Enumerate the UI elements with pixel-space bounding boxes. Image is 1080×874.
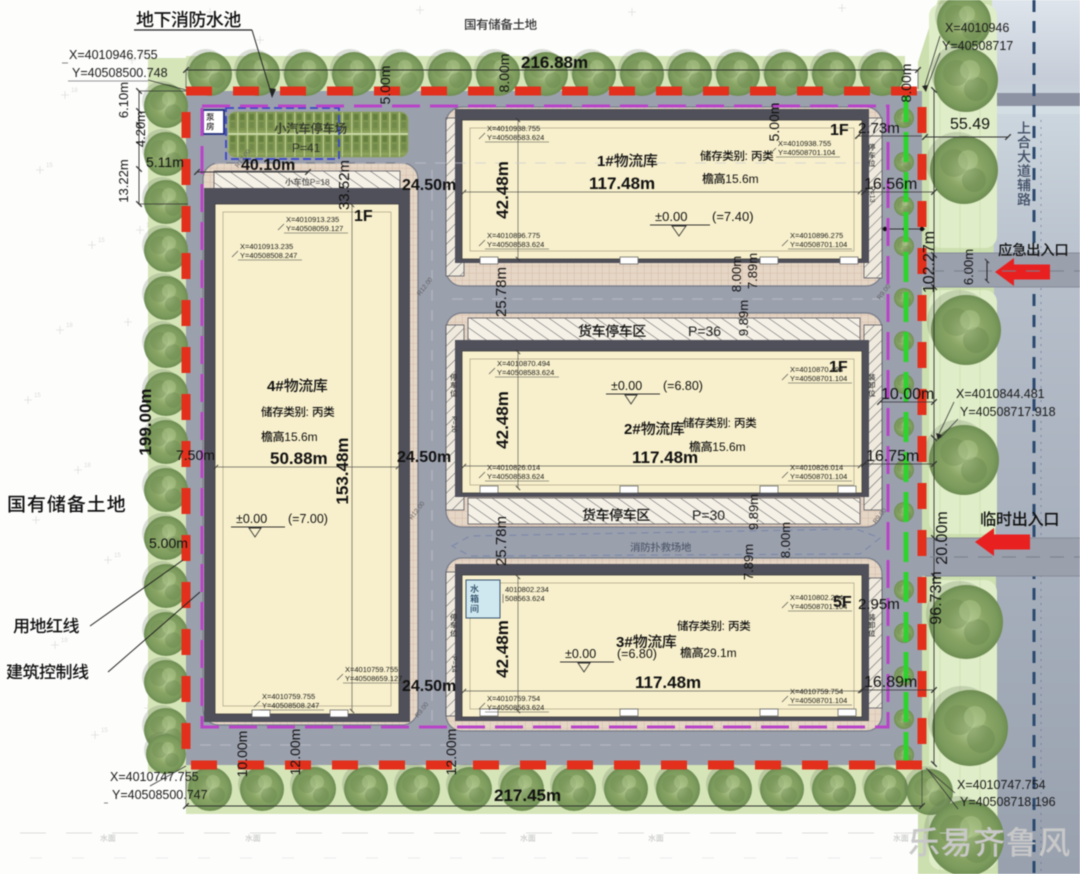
svg-text:16.89m: 16.89m — [864, 674, 917, 691]
svg-text:15: 15 — [101, 728, 108, 734]
svg-text:±0.00: ±0.00 — [611, 379, 642, 393]
svg-text:X=4010938.755: X=4010938.755 — [487, 124, 540, 133]
svg-text:X=4010870.494: X=4010870.494 — [497, 359, 550, 368]
svg-text:24.50m: 24.50m — [397, 449, 451, 466]
svg-text:X=4010826.014: X=4010826.014 — [790, 463, 843, 472]
svg-text:P=30: P=30 — [692, 507, 725, 523]
svg-text:Y=40508059.127: Y=40508059.127 — [286, 224, 343, 233]
svg-text:96.73m: 96.73m — [928, 571, 945, 624]
svg-text:X=4010844.481: X=4010844.481 — [956, 387, 1045, 401]
svg-text:5.00m: 5.00m — [377, 66, 393, 105]
svg-text::: : — [745, 151, 748, 163]
svg-text:42.48m: 42.48m — [493, 391, 512, 449]
svg-text:(=7.40): (=7.40) — [712, 209, 754, 224]
svg-text:42.48m: 42.48m — [493, 620, 512, 678]
svg-text:Y=40508583.624: Y=40508583.624 — [487, 240, 544, 249]
svg-text:±0.00: ±0.00 — [236, 512, 267, 526]
svg-text:7.89m: 7.89m — [741, 544, 756, 580]
svg-text:1F: 1F — [830, 122, 849, 139]
svg-text:18: 18 — [66, 323, 73, 329]
svg-text:508563.624: 508563.624 — [505, 594, 545, 603]
svg-text::: : — [306, 407, 309, 419]
svg-text:X=4010870.494: X=4010870.494 — [790, 365, 843, 374]
svg-text:±0.00: ±0.00 — [565, 647, 596, 661]
svg-text:Y=40508508.247: Y=40508508.247 — [240, 251, 297, 260]
svg-text:10.00m: 10.00m — [234, 731, 250, 778]
svg-text:7.89m: 7.89m — [745, 253, 760, 289]
svg-text:X=4010759.755: X=4010759.755 — [262, 692, 315, 701]
svg-text:117.48m: 117.48m — [635, 673, 701, 692]
svg-text:15.6m: 15.6m — [712, 440, 745, 454]
svg-text:2#: 2# — [624, 421, 641, 438]
svg-text:X=4010938.755: X=4010938.755 — [778, 139, 831, 148]
svg-text:6.00m: 6.00m — [961, 249, 976, 285]
svg-text:P=18: P=18 — [310, 177, 330, 187]
svg-text:8.00m: 8.00m — [778, 522, 793, 558]
svg-text:199.00m: 199.00m — [136, 388, 155, 455]
svg-text:24.50m: 24.50m — [402, 678, 456, 695]
svg-text:15: 15 — [34, 393, 41, 399]
svg-text:X=4010946.755: X=4010946.755 — [69, 48, 158, 62]
svg-text:4#: 4# — [267, 378, 284, 395]
svg-text:24.50m: 24.50m — [402, 177, 456, 194]
svg-text:Y=40508701.104: Y=40508701.104 — [790, 240, 847, 249]
svg-text:X=4010826.014: X=4010826.014 — [487, 463, 540, 472]
svg-text:Y=40508583.624: Y=40508583.624 — [487, 472, 544, 481]
svg-text:217.45m: 217.45m — [494, 786, 561, 805]
svg-text:5.00m: 5.00m — [149, 535, 188, 551]
svg-text::: : — [728, 418, 731, 430]
svg-text:Y=40508583.624: Y=40508583.624 — [497, 368, 554, 377]
svg-text:Y=40508701.104: Y=40508701.104 — [790, 696, 847, 705]
svg-text:117.48m: 117.48m — [632, 448, 698, 467]
svg-text:P=41: P=41 — [292, 141, 321, 155]
svg-text:153.48m: 153.48m — [333, 437, 352, 504]
svg-text:Y=40508563.624: Y=40508563.624 — [487, 703, 544, 712]
svg-text:Y=40508701.104: Y=40508701.104 — [790, 602, 847, 611]
svg-text:25.78m: 25.78m — [493, 516, 510, 566]
svg-text:X=4010759.755: X=4010759.755 — [345, 665, 398, 674]
svg-text:7.50m: 7.50m — [176, 447, 215, 463]
svg-text:(=6.80): (=6.80) — [663, 379, 703, 393]
svg-text:X=4010896.775: X=4010896.775 — [487, 231, 540, 240]
svg-text:25.78m: 25.78m — [493, 267, 510, 317]
svg-text:Y=40508717.918: Y=40508717.918 — [960, 405, 1056, 419]
svg-text:X=4010759.754: X=4010759.754 — [487, 694, 540, 703]
svg-text:15: 15 — [98, 238, 105, 244]
svg-text:4.20m: 4.20m — [133, 111, 148, 147]
svg-text:216.88m: 216.88m — [521, 53, 588, 72]
svg-text:18: 18 — [84, 463, 91, 469]
svg-text:Y=40508701.104: Y=40508701.104 — [778, 148, 835, 157]
svg-text:4010802.234: 4010802.234 — [505, 585, 549, 594]
svg-text:9.89m: 9.89m — [746, 494, 761, 530]
svg-text:X=4010747.754: X=4010747.754 — [957, 778, 1046, 792]
svg-text:117.48m: 117.48m — [589, 174, 655, 193]
svg-text:Y=40508500.747: Y=40508500.747 — [112, 788, 208, 802]
svg-text:8.00m: 8.00m — [898, 64, 914, 103]
svg-text:X=4010802.234: X=4010802.234 — [790, 593, 843, 602]
svg-text:12.00m: 12.00m — [287, 729, 303, 776]
svg-text:P=36: P=36 — [688, 323, 721, 339]
svg-text:Y=40508701.104: Y=40508701.104 — [790, 374, 847, 383]
svg-text:15: 15 — [46, 163, 53, 169]
svg-text:12.00m: 12.00m — [443, 729, 459, 776]
svg-text:1F: 1F — [354, 208, 373, 225]
svg-text:Y=40508717: Y=40508717 — [942, 39, 1013, 53]
svg-text:P=16: P=16 — [450, 416, 457, 433]
svg-text:Y=40508583.624: Y=40508583.624 — [487, 133, 544, 142]
svg-text:102.27m: 102.27m — [921, 231, 938, 293]
svg-text:X=4010913.235: X=4010913.235 — [286, 215, 339, 224]
svg-text:16.75m: 16.75m — [866, 448, 919, 465]
svg-text:8.00m: 8.00m — [496, 54, 512, 93]
svg-text:6.10m: 6.10m — [116, 82, 131, 118]
svg-text:42.48m: 42.48m — [493, 161, 512, 219]
svg-text:50.88m: 50.88m — [270, 449, 328, 468]
svg-text:40.10m: 40.10m — [241, 157, 295, 174]
svg-text:2.73m: 2.73m — [858, 120, 900, 137]
svg-text:9.89m: 9.89m — [736, 300, 751, 336]
svg-text:X=4010896.275: X=4010896.275 — [790, 231, 843, 240]
svg-text:(=7.00): (=7.00) — [288, 512, 328, 526]
svg-text:18: 18 — [61, 638, 68, 644]
svg-text:X=4010946: X=4010946 — [945, 21, 1009, 35]
svg-text:Y=40508701.104: Y=40508701.104 — [790, 472, 847, 481]
svg-text:15.6m: 15.6m — [284, 430, 317, 444]
svg-text:X=4010759.754: X=4010759.754 — [790, 687, 843, 696]
svg-text:29.1m: 29.1m — [703, 646, 736, 660]
svg-text:2.95m: 2.95m — [858, 596, 900, 613]
svg-text:18: 18 — [71, 88, 78, 94]
svg-text:Y=40508508.247: Y=40508508.247 — [262, 701, 319, 710]
svg-text:5.00m: 5.00m — [766, 103, 782, 142]
svg-text:Y=40508659.127: Y=40508659.127 — [345, 674, 402, 683]
svg-text:13.22m: 13.22m — [116, 159, 131, 202]
svg-text::: : — [722, 621, 725, 633]
svg-text:55.49: 55.49 — [950, 116, 990, 133]
svg-text:1#: 1# — [597, 153, 614, 170]
svg-text:Y=40508718.196: Y=40508718.196 — [960, 795, 1056, 809]
svg-text:8.00m: 8.00m — [729, 256, 744, 292]
svg-text:Y=40508500.748: Y=40508500.748 — [72, 66, 168, 80]
svg-text:10.00m: 10.00m — [881, 386, 934, 403]
svg-text:X=4010913.235: X=4010913.235 — [240, 242, 293, 251]
svg-text:16.56m: 16.56m — [864, 176, 917, 193]
svg-text:15: 15 — [114, 553, 121, 559]
svg-text:X=4010747.755: X=4010747.755 — [110, 770, 199, 784]
svg-text:P=14: P=14 — [450, 656, 457, 673]
svg-text:(=6.80): (=6.80) — [617, 647, 657, 661]
svg-text:15.6m: 15.6m — [725, 172, 758, 186]
svg-text:5.11m: 5.11m — [146, 154, 184, 170]
svg-text:33.52m: 33.52m — [336, 160, 353, 210]
svg-text:±0.00: ±0.00 — [655, 209, 687, 224]
